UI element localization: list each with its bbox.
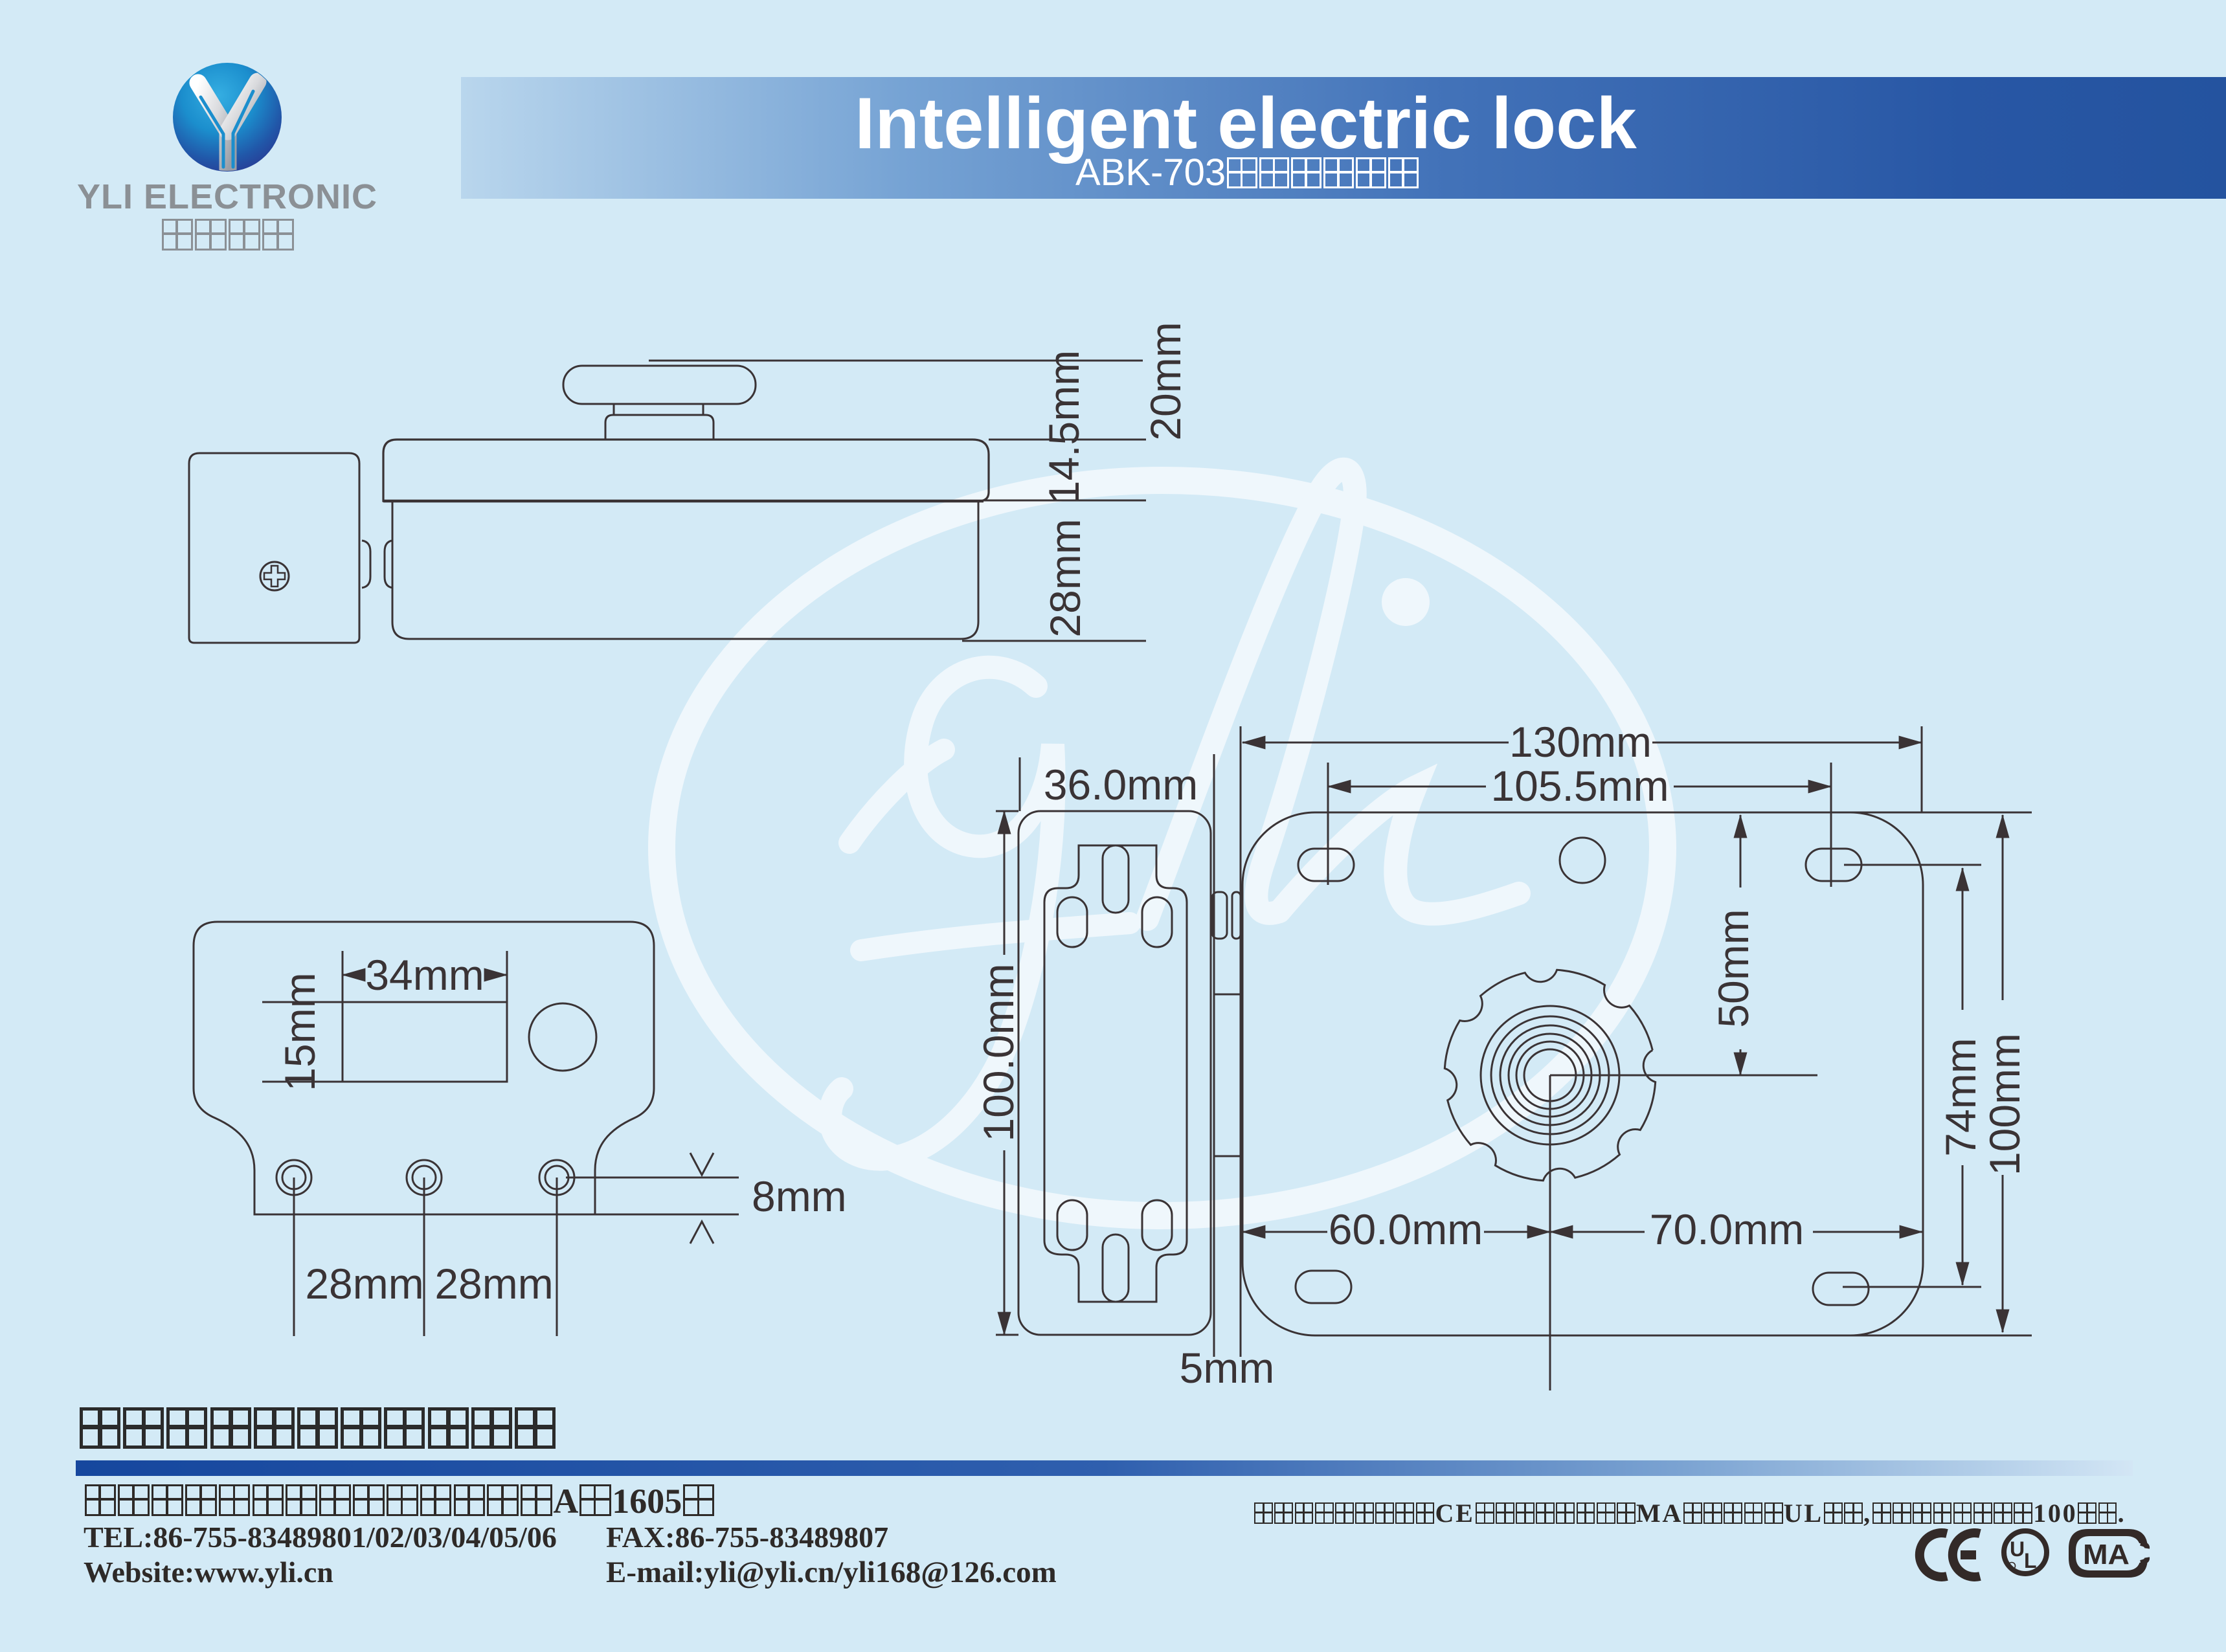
svg-text:130mm: 130mm	[1509, 718, 1652, 766]
svg-text:74mm: 74mm	[1937, 1038, 1984, 1156]
svg-text:YLI ELECTRONIC: YLI ELECTRONIC	[77, 177, 377, 216]
svg-text:36.0mm: 36.0mm	[1044, 761, 1198, 809]
svg-text:70.0mm: 70.0mm	[1650, 1205, 1804, 1253]
svg-text:MA: MA	[2083, 1539, 2130, 1570]
svg-text:8mm: 8mm	[752, 1172, 847, 1220]
svg-text:15mm: 15mm	[276, 972, 324, 1091]
svg-text:50mm: 50mm	[1709, 909, 1757, 1027]
svg-text:U: U	[2010, 1537, 2025, 1561]
svg-text:34mm: 34mm	[365, 951, 484, 999]
svg-text:20mm: 20mm	[1141, 322, 1189, 440]
svg-text:14.5mm: 14.5mm	[1040, 350, 1088, 504]
svg-text:100mm: 100mm	[1981, 1033, 2029, 1176]
svg-text:28mm: 28mm	[434, 1260, 553, 1308]
svg-text:28mm: 28mm	[305, 1260, 423, 1308]
svg-text:L: L	[2024, 1549, 2037, 1572]
svg-text:Intelligent electric lock: Intelligent electric lock	[855, 83, 1637, 164]
svg-text:100.0mm: 100.0mm	[974, 963, 1022, 1141]
svg-text:28mm: 28mm	[1041, 519, 1089, 637]
svg-text:5mm: 5mm	[1180, 1344, 1275, 1392]
svg-text:105.5mm: 105.5mm	[1490, 762, 1669, 810]
svg-text:60.0mm: 60.0mm	[1329, 1205, 1483, 1253]
